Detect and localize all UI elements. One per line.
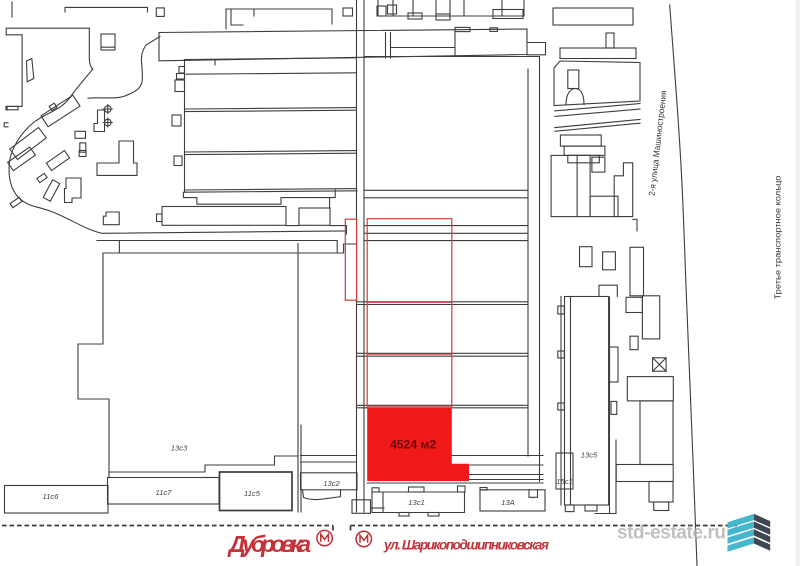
svg-text:Третье транспортное кольцо: Третье транспортное кольцо <box>773 175 783 299</box>
svg-text:13с5: 13с5 <box>581 451 598 460</box>
svg-text:11с7: 11с7 <box>156 488 173 497</box>
svg-text:13с1: 13с1 <box>408 498 424 507</box>
svg-text:15с1: 15с1 <box>556 477 572 486</box>
svg-text:std-estate.ru: std-estate.ru <box>617 523 726 544</box>
svg-text:13А: 13А <box>501 498 515 507</box>
svg-text:11с5: 11с5 <box>244 489 261 498</box>
svg-text:Дубровка: Дубровка <box>227 531 311 557</box>
svg-text:4524 м2: 4524 м2 <box>390 438 437 452</box>
svg-text:13с2: 13с2 <box>323 479 340 488</box>
svg-text:13с3: 13с3 <box>171 444 188 453</box>
svg-text:11с6: 11с6 <box>43 492 60 501</box>
svg-text:ул. Шарикоподшипниковская: ул. Шарикоподшипниковская <box>383 538 549 553</box>
